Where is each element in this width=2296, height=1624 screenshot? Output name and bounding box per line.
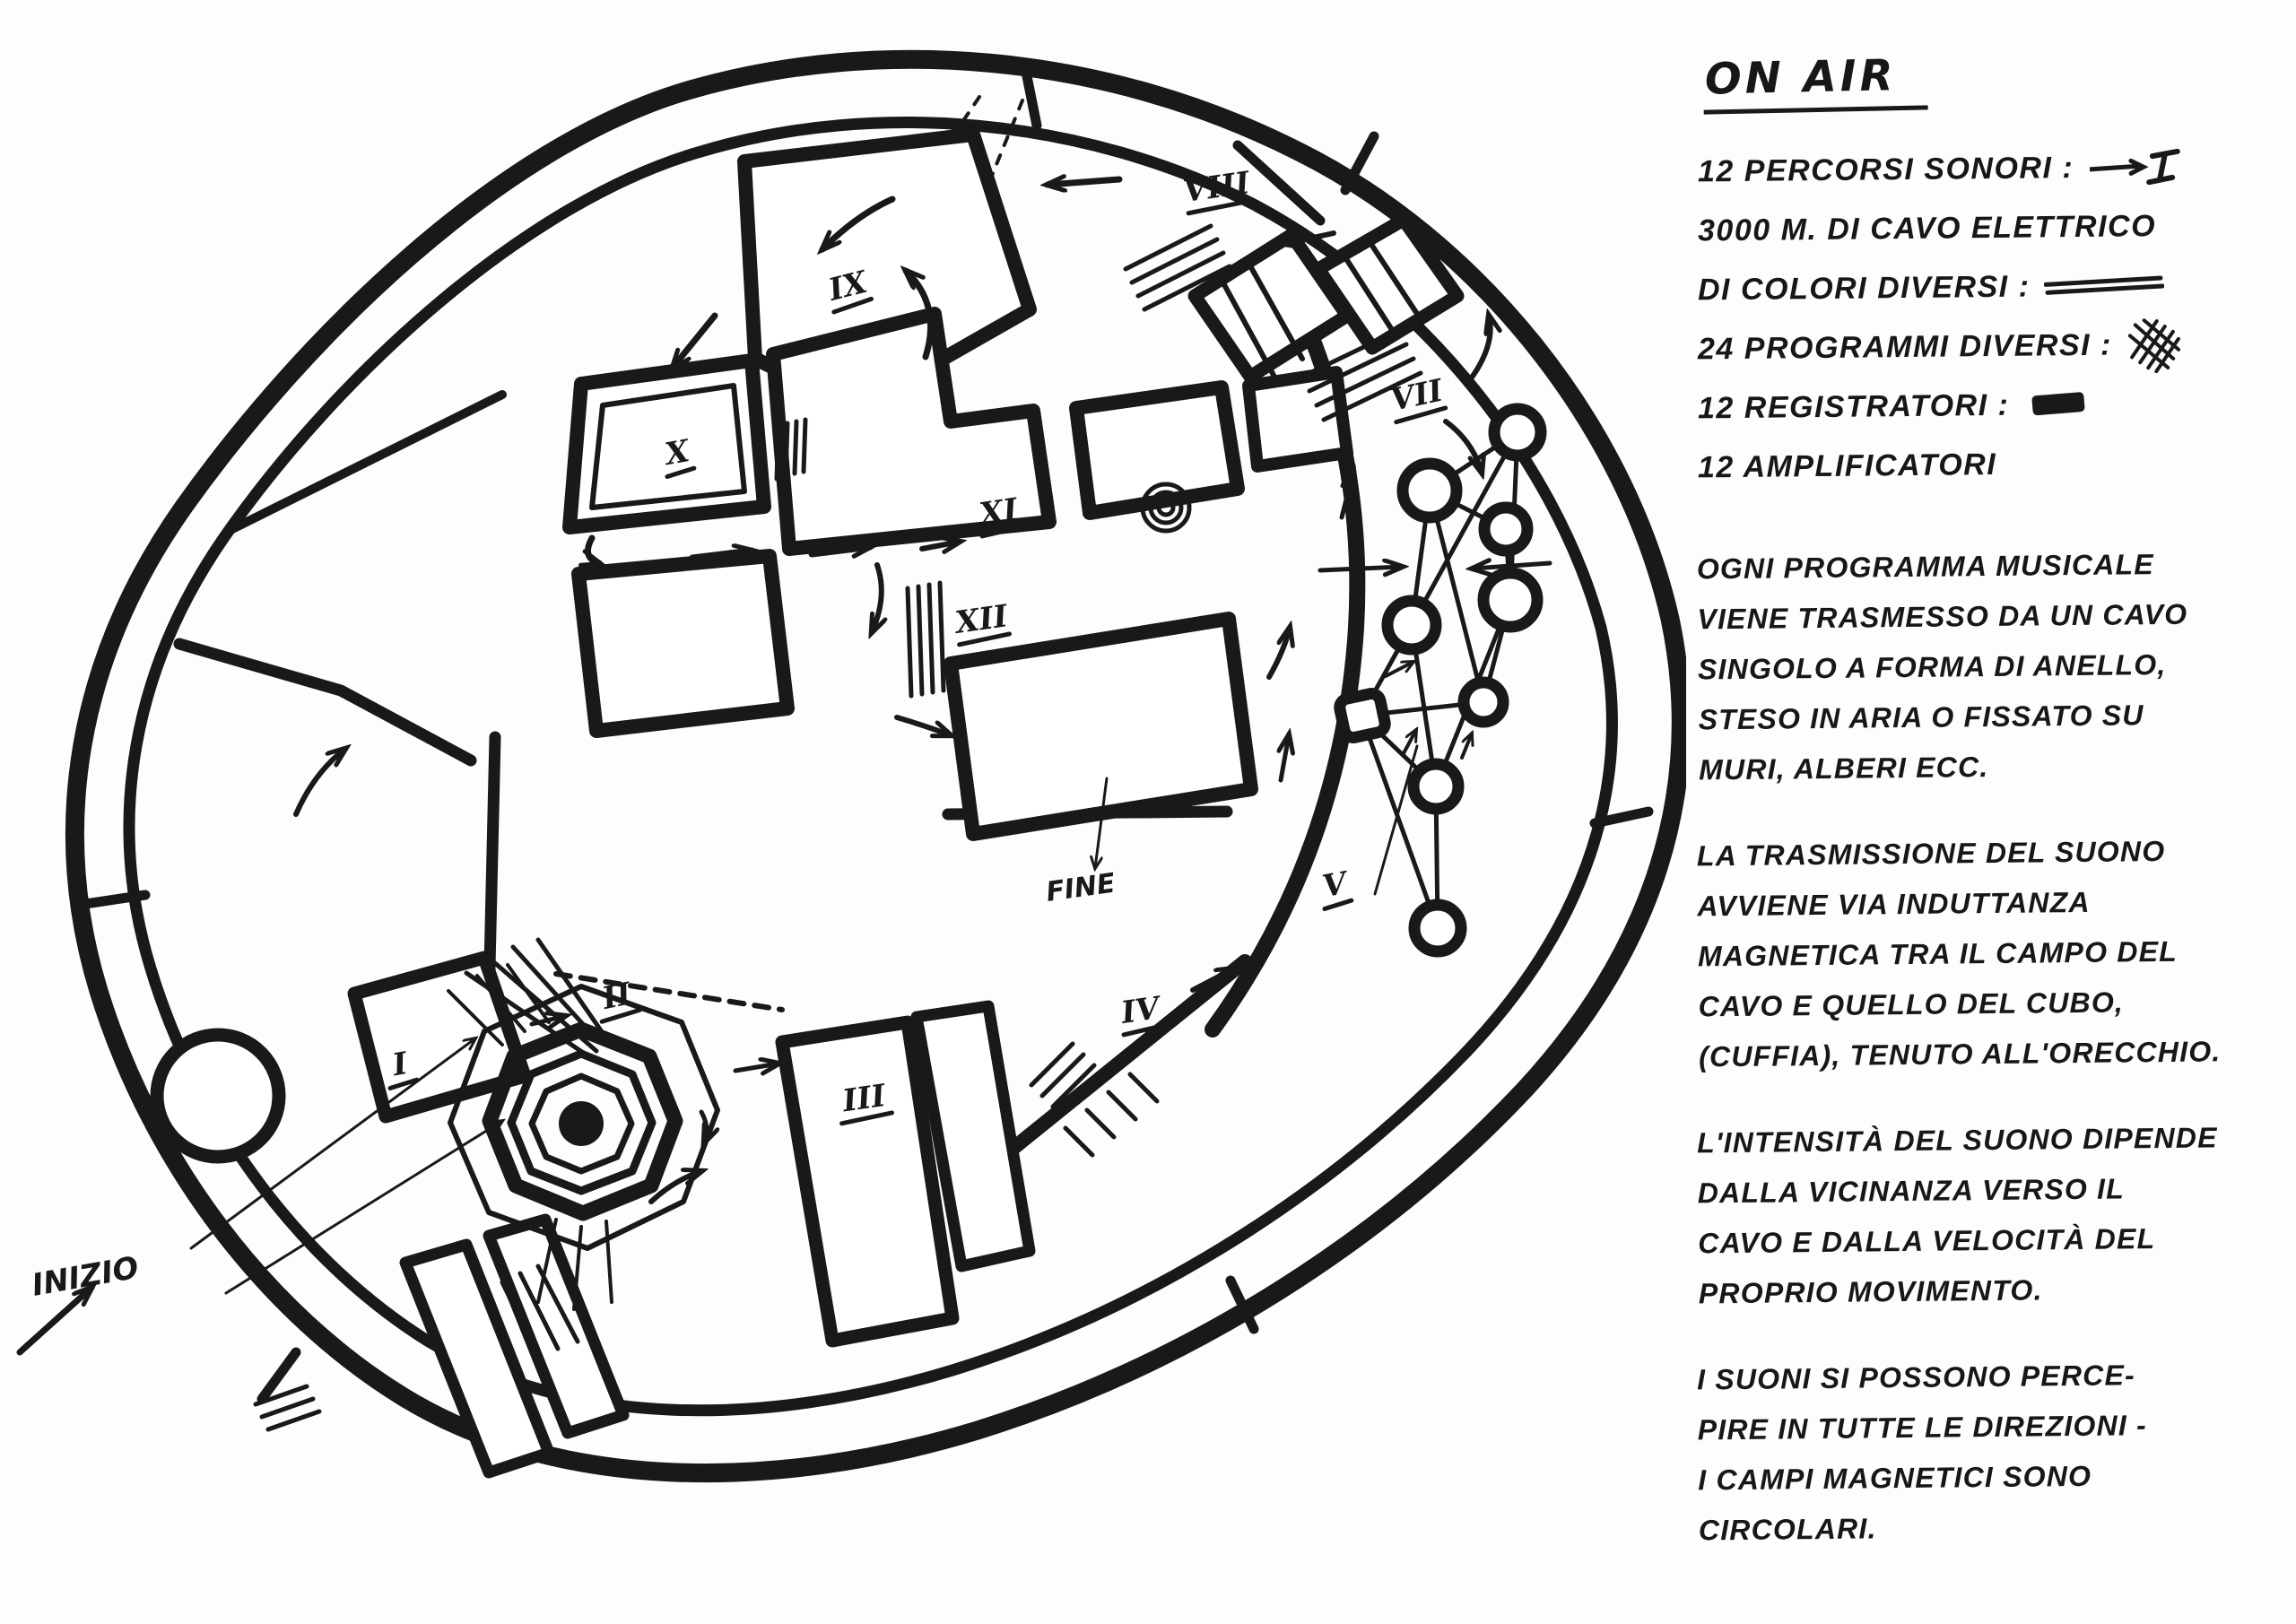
equipment-text: 12 PERCORSI SONORI : — [1698, 151, 2074, 189]
buildings — [157, 135, 1457, 1472]
note-paragraph-transmission-cable: OGNI PROGRAMMA MUSICALE VIENE TRASMESSO … — [1697, 538, 2287, 795]
scanned-sketch-page: IIIIIIIVVVIIVIIIIXXXIXII INIZIO FINE ON … — [0, 0, 2296, 1624]
equipment-text: 12 AMPLIFICATORI — [1698, 447, 1997, 484]
end-label: FINE — [1044, 867, 1118, 908]
equipment-row: 3000 M. DI CAVO ELETTRICO — [1698, 195, 2286, 261]
note-paragraph-magnetic-induction: LA TRASMISSIONE DEL SUONO AVVIENE VIA IN… — [1697, 825, 2287, 1082]
note-paragraph-sound-intensity: L'INTENSITÀ DEL SUONO DIPENDE DALLA VICI… — [1697, 1112, 2286, 1319]
notes-column: ON AIR 12 PERCORSI SONORI : 3000 M. DI C… — [1698, 52, 2285, 1588]
notes-title: ON AIR — [1702, 49, 1927, 114]
equipment-text: 24 PROGRAMMI DIVERSI : — [1698, 327, 2112, 367]
equipment-text: DI COLORI DIVERSI : — [1698, 269, 2031, 308]
equipment-row: 12 AMPLIFICATORI — [1698, 432, 2286, 498]
note-paragraph-directions: I SUONI SI POSSONO PERCE- PIRE IN TUTTE … — [1697, 1349, 2286, 1556]
equipment-row: DI COLORI DIVERSI : — [1698, 255, 2286, 320]
equipment-text: 3000 M. DI CAVO ELETTRICO — [1698, 209, 2156, 248]
cable-colors-symbol — [2044, 272, 2164, 300]
sound-path-symbol — [2088, 149, 2181, 186]
programs-symbol — [2126, 316, 2183, 374]
installation-map-drawing: IIIIIIIVVVIIVIIIIXXXIXII INIZIO FINE — [0, 0, 1686, 1624]
equipment-row: 12 PERCORSI SONORI : — [1698, 136, 2286, 202]
equipment-row: 24 PROGRAMMI DIVERSI : — [1698, 314, 2286, 379]
recorder-symbol — [2023, 388, 2092, 421]
route-numeral-V: V — [1320, 865, 1352, 906]
equipment-row: 12 REGISTRATORI : — [1698, 373, 2286, 439]
cable-ring-network — [1338, 409, 1541, 951]
equipment-text: 12 REGISTRATORI : — [1698, 387, 2010, 426]
equipment-list: 12 PERCORSI SONORI : 3000 M. DI CAVO ELE… — [1698, 139, 2285, 494]
